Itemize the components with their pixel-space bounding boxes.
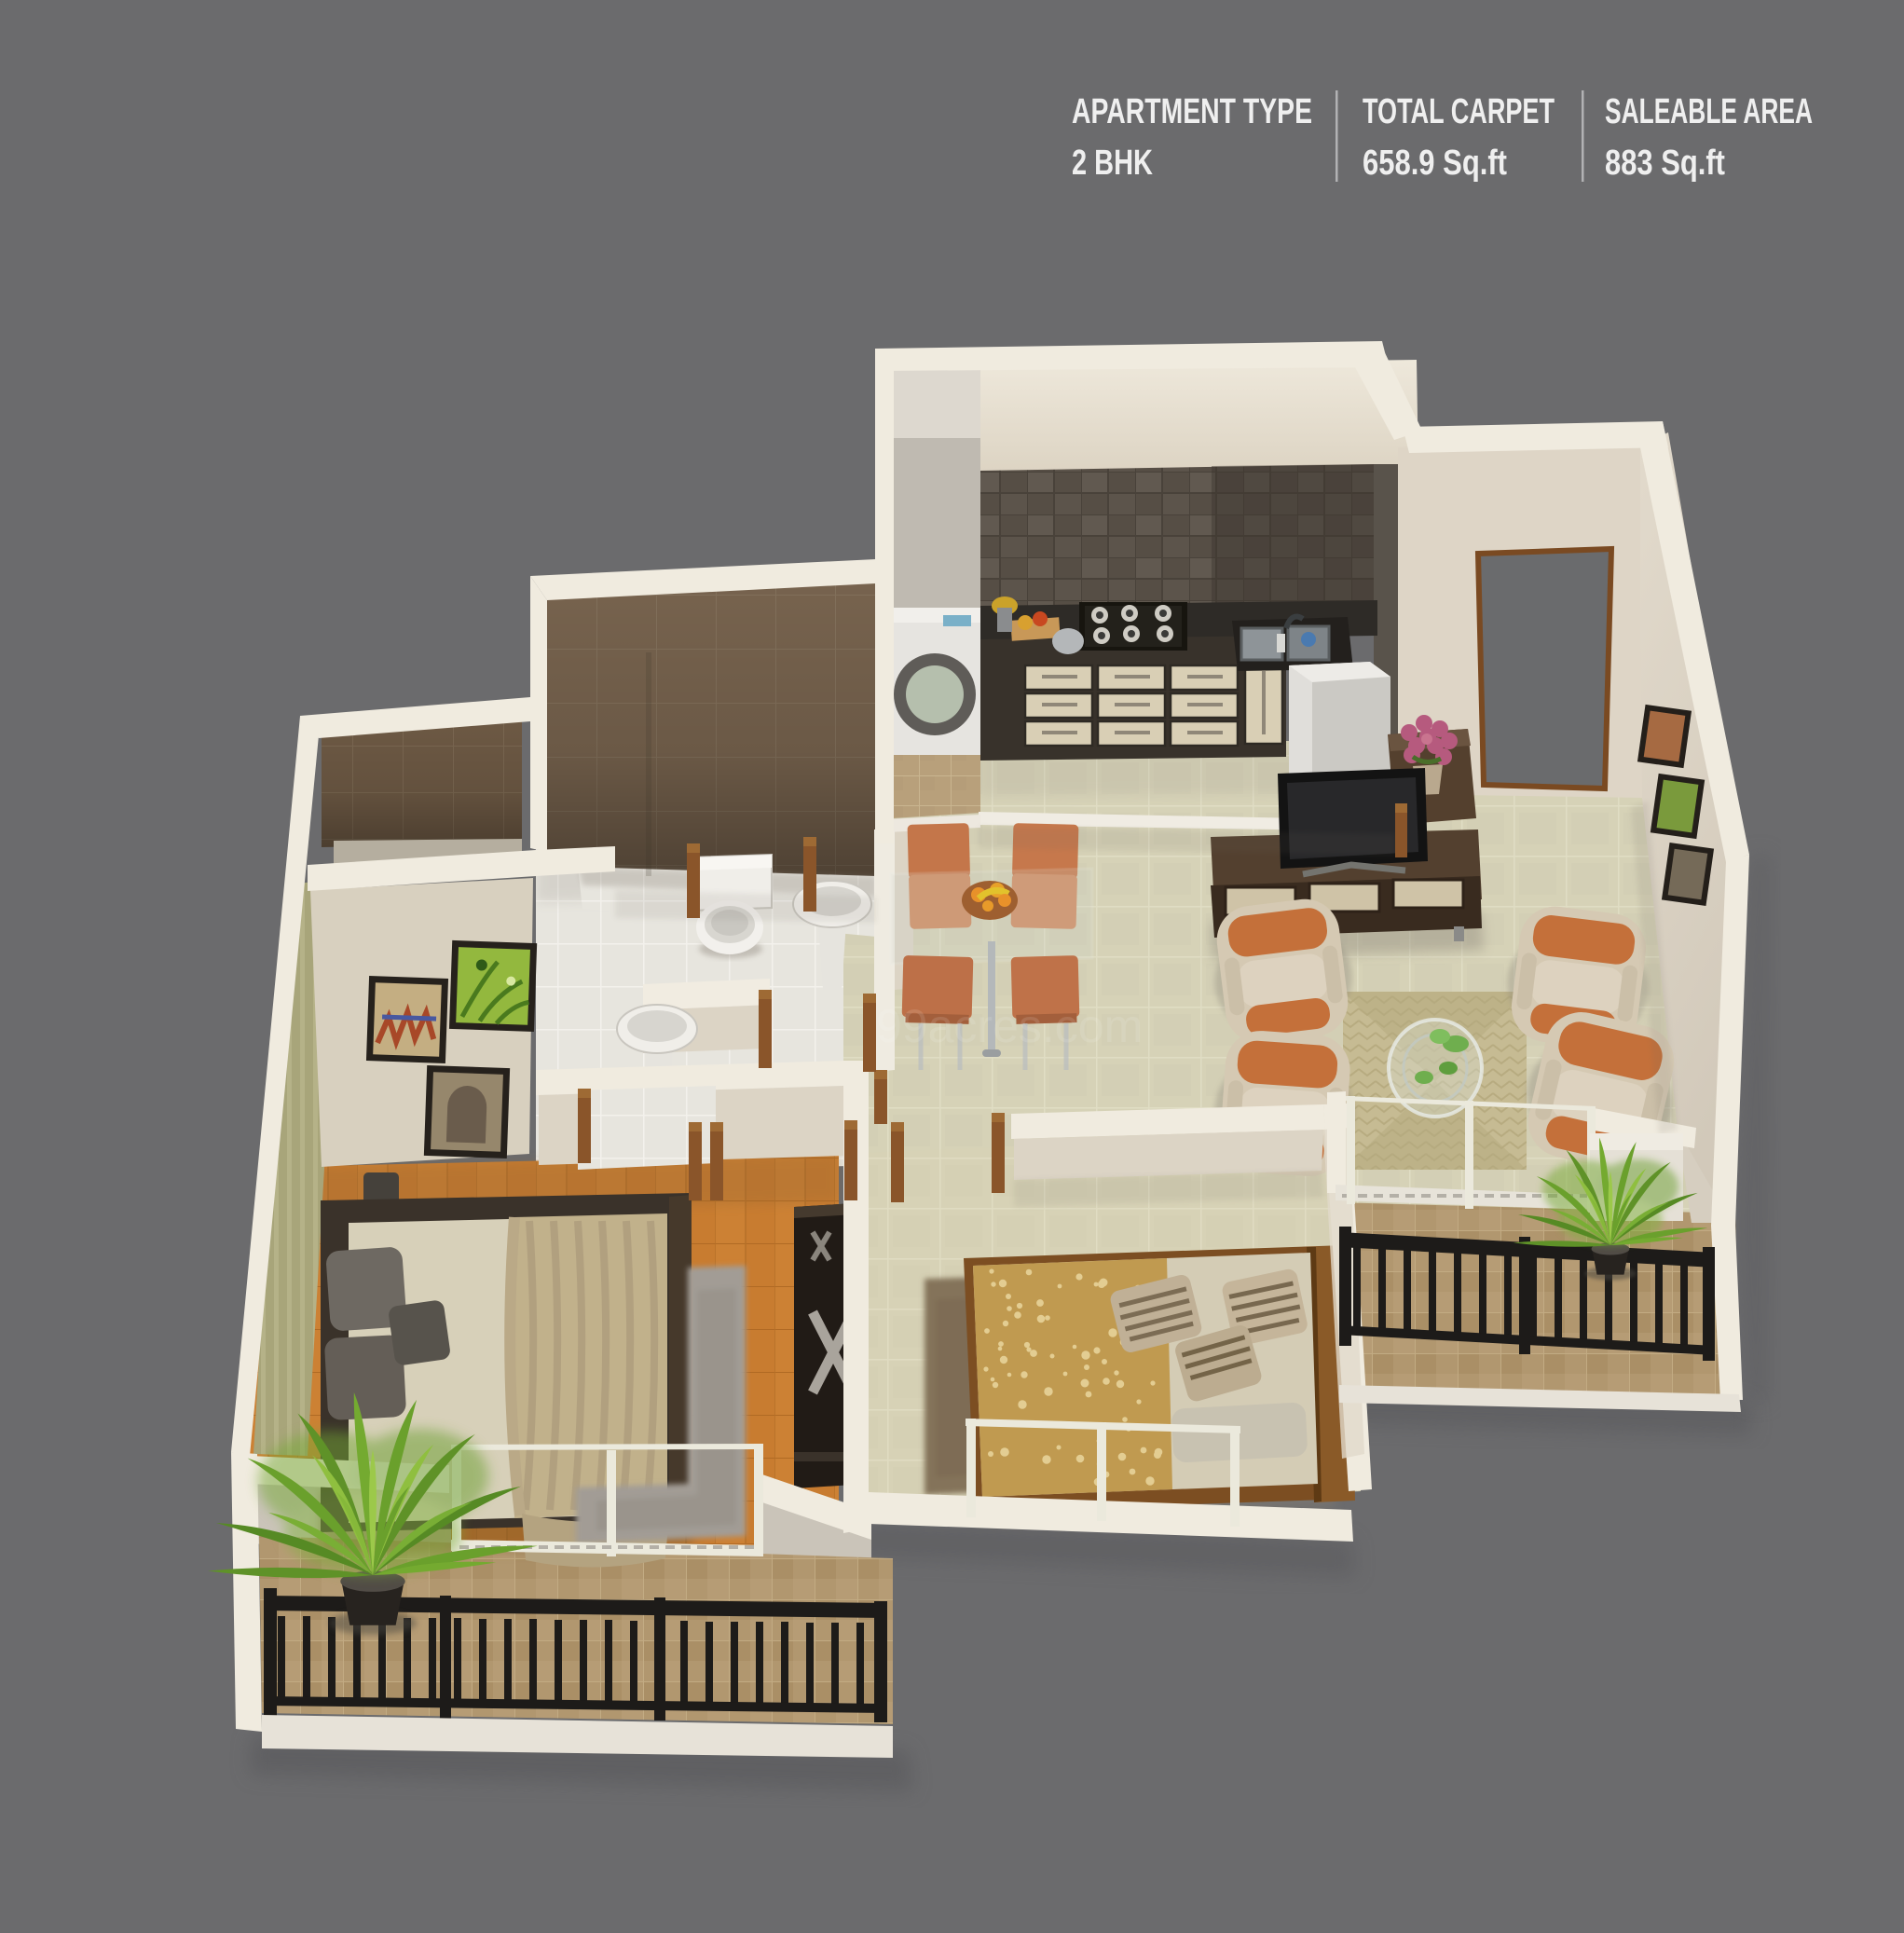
svg-text:TOTAL CARPET: TOTAL CARPET [1363, 92, 1555, 131]
svg-text:658.9 Sq.ft: 658.9 Sq.ft [1363, 144, 1507, 183]
svg-text:883 Sq.ft: 883 Sq.ft [1605, 144, 1725, 183]
svg-text:SALEABLE AREA: SALEABLE AREA [1605, 92, 1813, 131]
svg-text:APARTMENT TYPE: APARTMENT TYPE [1072, 92, 1312, 131]
svg-text:2 BHK: 2 BHK [1072, 144, 1153, 183]
svg-text:99acres.com: 99acres.com [876, 1000, 1143, 1052]
